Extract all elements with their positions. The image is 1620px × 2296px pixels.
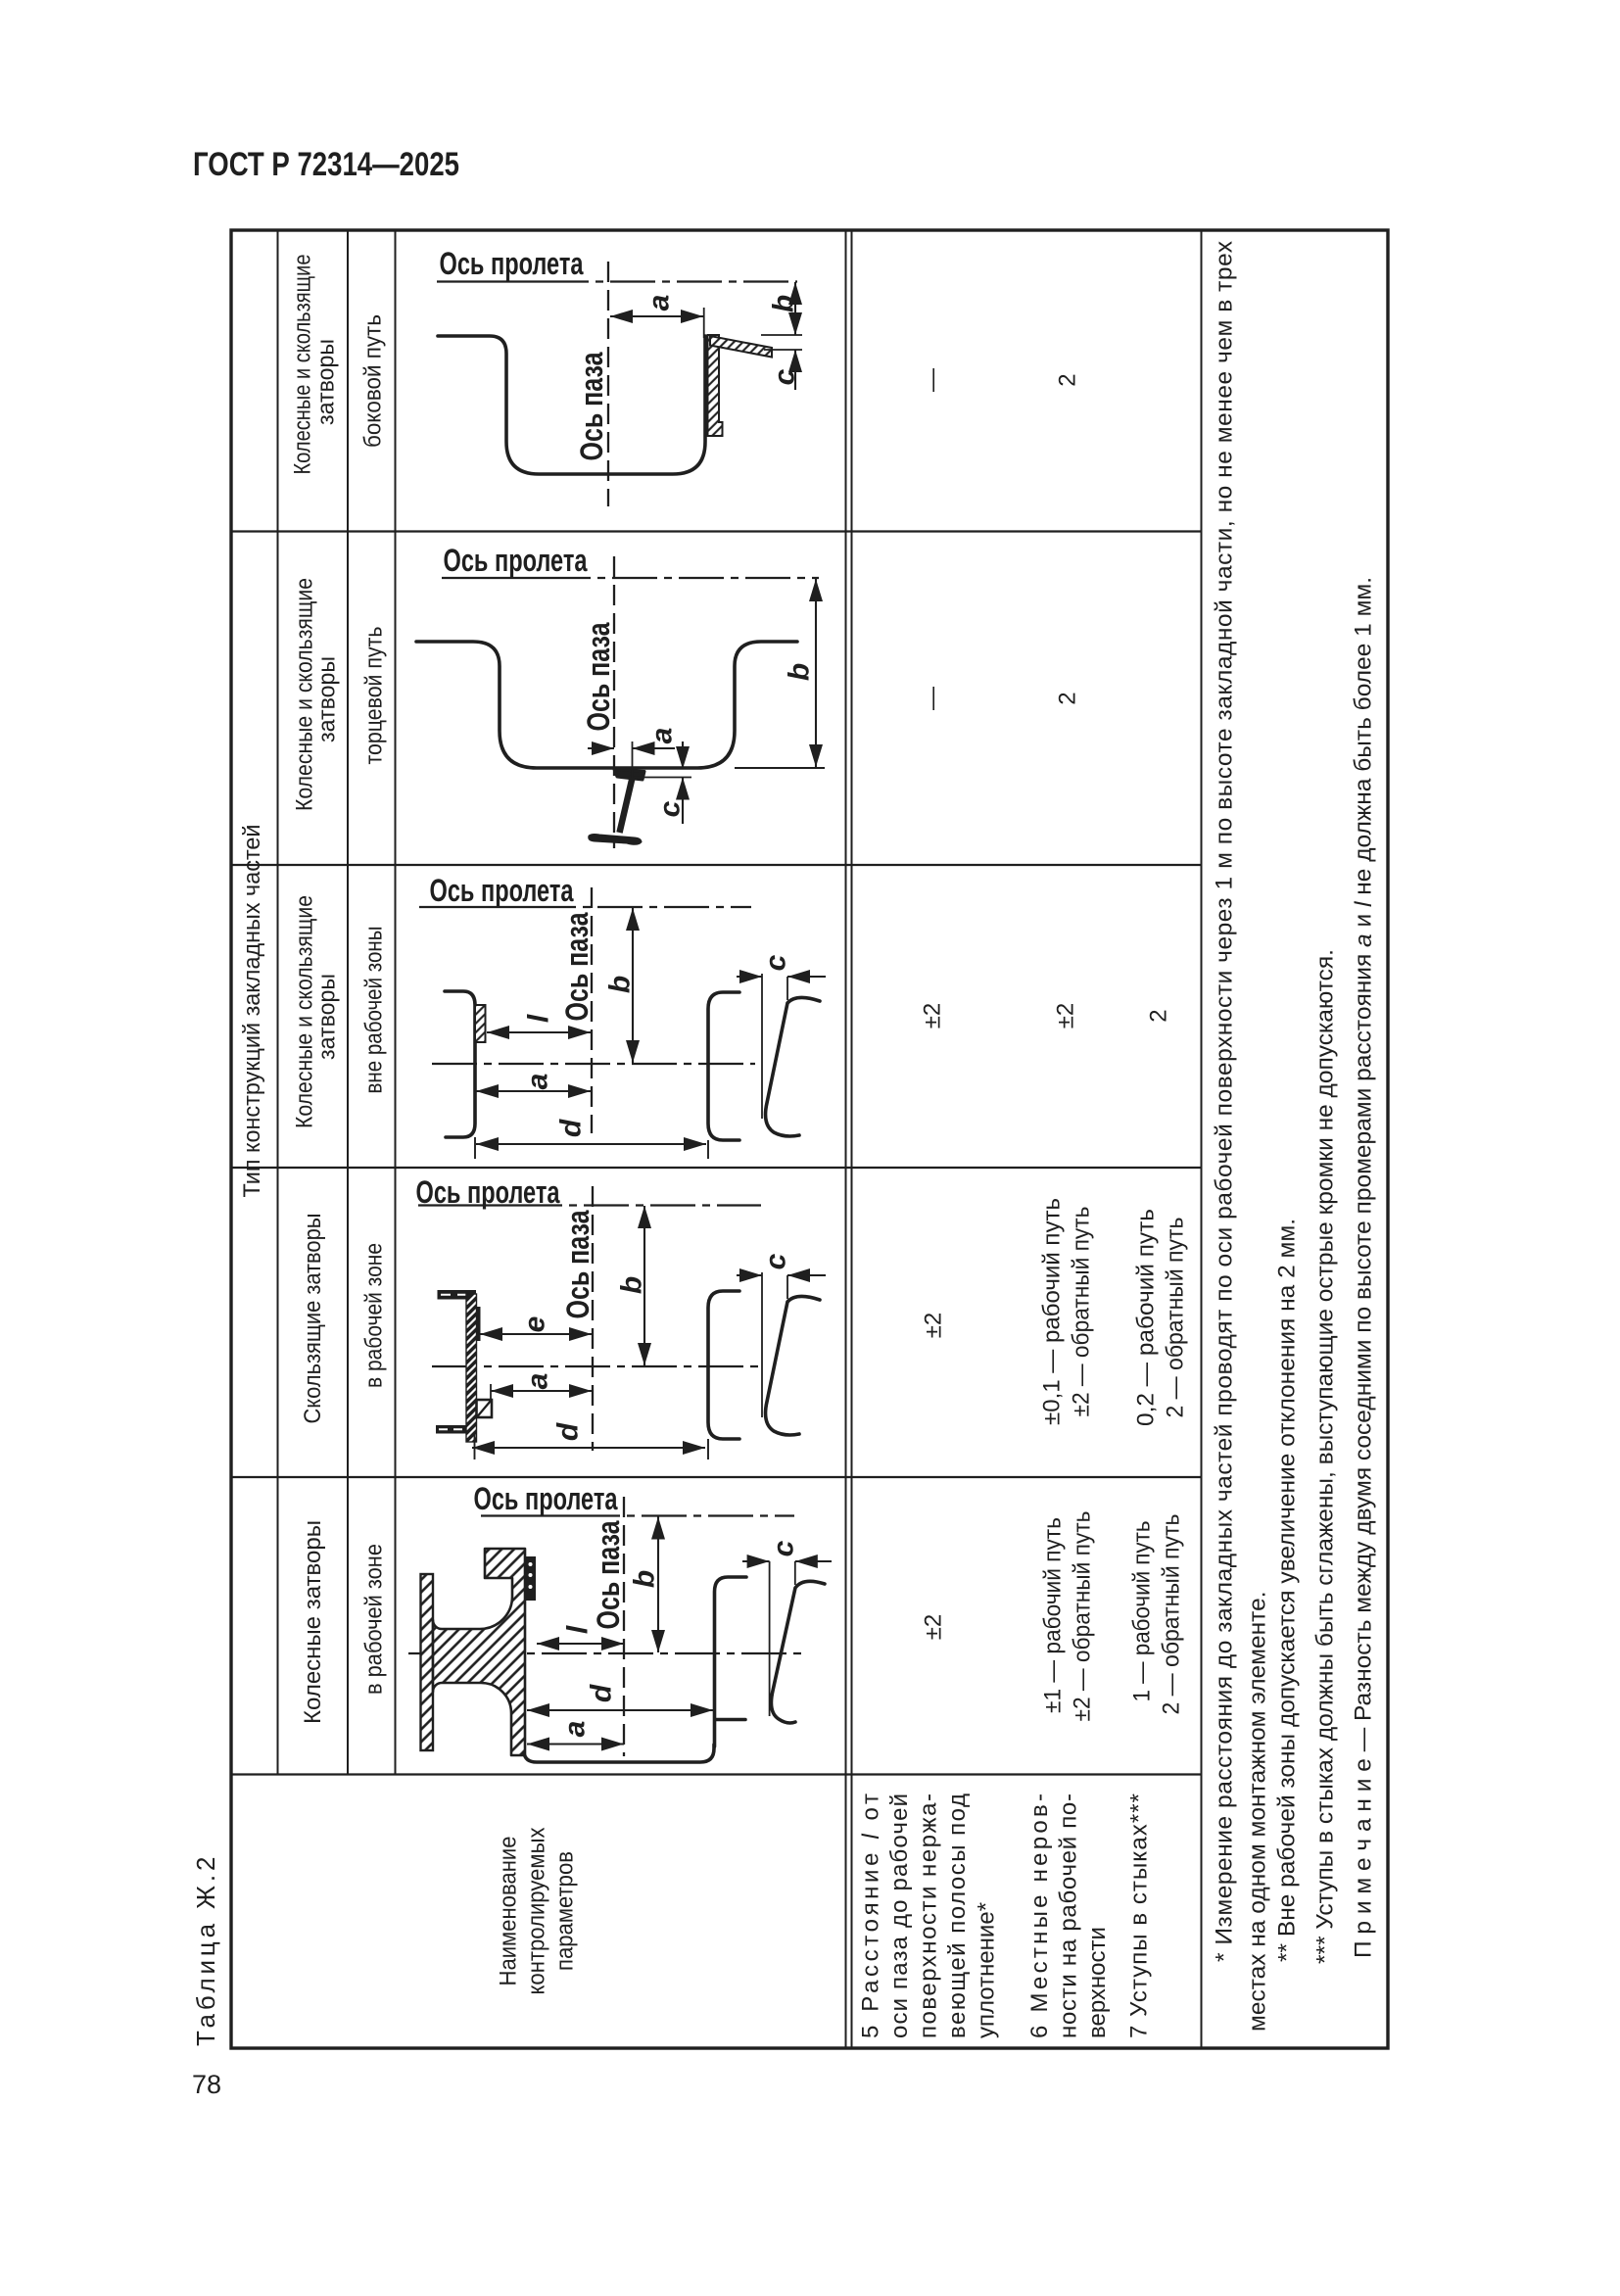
svg-text:Ось паза: Ось паза	[574, 352, 609, 460]
svg-text:±2: ±2	[1053, 1003, 1079, 1029]
svg-text:2: 2	[1055, 373, 1081, 386]
svg-text:уплотнение*: уплотнение*	[974, 1902, 1000, 2038]
svg-text:Скользящие затворы: Скользящие затворы	[300, 1214, 326, 1424]
svg-text:Наименование: Наименование	[496, 1837, 522, 1986]
svg-text:Колесные и скользящие: Колесные и скользящие	[290, 255, 316, 475]
svg-text:±1 — рабочий путь: ±1 — рабочий путь	[1040, 1517, 1067, 1713]
svg-text:верхности: верхности	[1084, 1927, 1111, 2038]
svg-text:6 Местные неров-: 6 Местные неров-	[1026, 1794, 1053, 2038]
svg-text:в рабочей зоне: в рабочей зоне	[361, 1544, 388, 1695]
svg-text:Колесные затворы: Колесные затворы	[300, 1520, 326, 1724]
svg-text:Ось паза: Ось паза	[591, 1520, 626, 1629]
svg-text:±2: ±2	[921, 1313, 947, 1339]
svg-text:поверхности нержа-: поверхности нержа-	[916, 1794, 942, 2038]
svg-text:е: е	[519, 1316, 551, 1333]
svg-text:l: l	[562, 1625, 595, 1634]
svg-text:вне рабочей зоны: вне рабочей зоны	[361, 927, 388, 1094]
svg-text:Ось пролета: Ось пролета	[444, 543, 588, 578]
svg-text:±2: ±2	[920, 1003, 946, 1029]
svg-text:—: —	[920, 687, 946, 710]
svg-text:c: c	[769, 368, 801, 385]
svg-text:боковой путь: боковой путь	[360, 314, 387, 448]
svg-text:±2: ±2	[921, 1614, 947, 1641]
svg-text:торцевой путь: торцевой путь	[361, 627, 388, 765]
svg-text:веющей полосы под: веющей полосы под	[944, 1794, 971, 2038]
svg-text:оси паза до рабочей: оси паза до рабочей	[886, 1794, 913, 2038]
svg-text:Ось паза: Ось паза	[581, 622, 616, 731]
svg-text:l: l	[523, 1014, 555, 1023]
svg-text:в рабочей зоне: в рабочей зоне	[361, 1243, 388, 1388]
svg-text:±2 — обратный путь: ±2 — обратный путь	[1070, 1511, 1096, 1722]
svg-text:ГОСТ Р 72314—2025: ГОСТ Р 72314—2025	[193, 146, 459, 183]
svg-text:1 — рабочий путь: 1 — рабочий путь	[1129, 1521, 1156, 1702]
svg-text:a: a	[643, 295, 676, 311]
svg-text:затворы: затворы	[314, 656, 341, 742]
svg-text:±0,1 — рабочий путь: ±0,1 — рабочий путь	[1039, 1198, 1066, 1425]
svg-text:контролируемых: контролируемых	[524, 1828, 550, 1995]
svg-text:d: d	[552, 1422, 585, 1441]
svg-text:c: c	[760, 954, 792, 971]
svg-text:Ось паза: Ось паза	[559, 912, 595, 1021]
svg-text:Тип конструкций закладных част: Тип конструкций закладных частей	[239, 825, 265, 1198]
svg-text:Ось пролета: Ось пролета	[474, 1481, 618, 1516]
svg-text:Ось пролета: Ось пролета	[440, 246, 584, 281]
svg-text:местах на одном монтажном элем: местах на одном монтажном элементе.	[1245, 1591, 1271, 2032]
svg-text:*** Уступы в стыках должны быт: *** Уступы в стыках должны быть сглажены…	[1312, 949, 1339, 1964]
svg-text:параметров: параметров	[552, 1851, 579, 1971]
svg-text:±2 — обратный путь: ±2 — обратный путь	[1069, 1207, 1095, 1417]
svg-text:b: b	[616, 1276, 648, 1294]
svg-text:c: c	[760, 1253, 792, 1269]
svg-text:7 Уступы в стыках***: 7 Уступы в стыках***	[1126, 1794, 1153, 2038]
svg-text:c: c	[654, 800, 687, 817]
svg-text:c: c	[768, 1540, 800, 1556]
svg-text:2 — обратный путь: 2 — обратный путь	[1159, 1514, 1185, 1715]
svg-text:* Измерение расстояния до закл: * Измерение расстояния до закладных част…	[1212, 241, 1238, 1962]
svg-text:** Вне рабочей зоны допускаетс: ** Вне рабочей зоны допускается увеличен…	[1274, 1219, 1301, 1962]
svg-text:a: a	[559, 1721, 592, 1738]
svg-text:2: 2	[1146, 1009, 1172, 1022]
svg-text:a: a	[522, 1074, 554, 1090]
svg-text:b: b	[784, 663, 816, 681]
svg-text:2 — обратный путь: 2 — обратный путь	[1163, 1218, 1189, 1418]
svg-text:—: —	[920, 368, 946, 392]
svg-text:затворы: затворы	[314, 974, 341, 1060]
svg-text:Ось паза: Ось паза	[560, 1210, 596, 1318]
svg-text:b: b	[768, 295, 800, 312]
svg-text:a: a	[522, 1373, 554, 1390]
svg-text:d: d	[586, 1684, 618, 1702]
svg-text:b: b	[604, 976, 637, 993]
svg-text:5 Расстояние l от: 5 Расстояние l от	[858, 1794, 884, 2038]
svg-text:b: b	[629, 1570, 661, 1588]
svg-text:0,2 — рабочий путь: 0,2 — рабочий путь	[1133, 1209, 1160, 1426]
svg-text:П р и м е ч а н и е — Разность: П р и м е ч а н и е — Разность между дву…	[1351, 577, 1377, 1958]
svg-text:Ось пролета: Ось пролета	[430, 873, 574, 908]
svg-text:затворы: затворы	[313, 339, 340, 425]
svg-text:78: 78	[192, 2070, 221, 2099]
svg-text:2: 2	[1055, 692, 1081, 704]
svg-text:a: a	[646, 728, 679, 744]
svg-text:d: d	[555, 1119, 588, 1137]
svg-text:ности на рабочей по-: ности на рабочей по-	[1056, 1794, 1082, 2038]
